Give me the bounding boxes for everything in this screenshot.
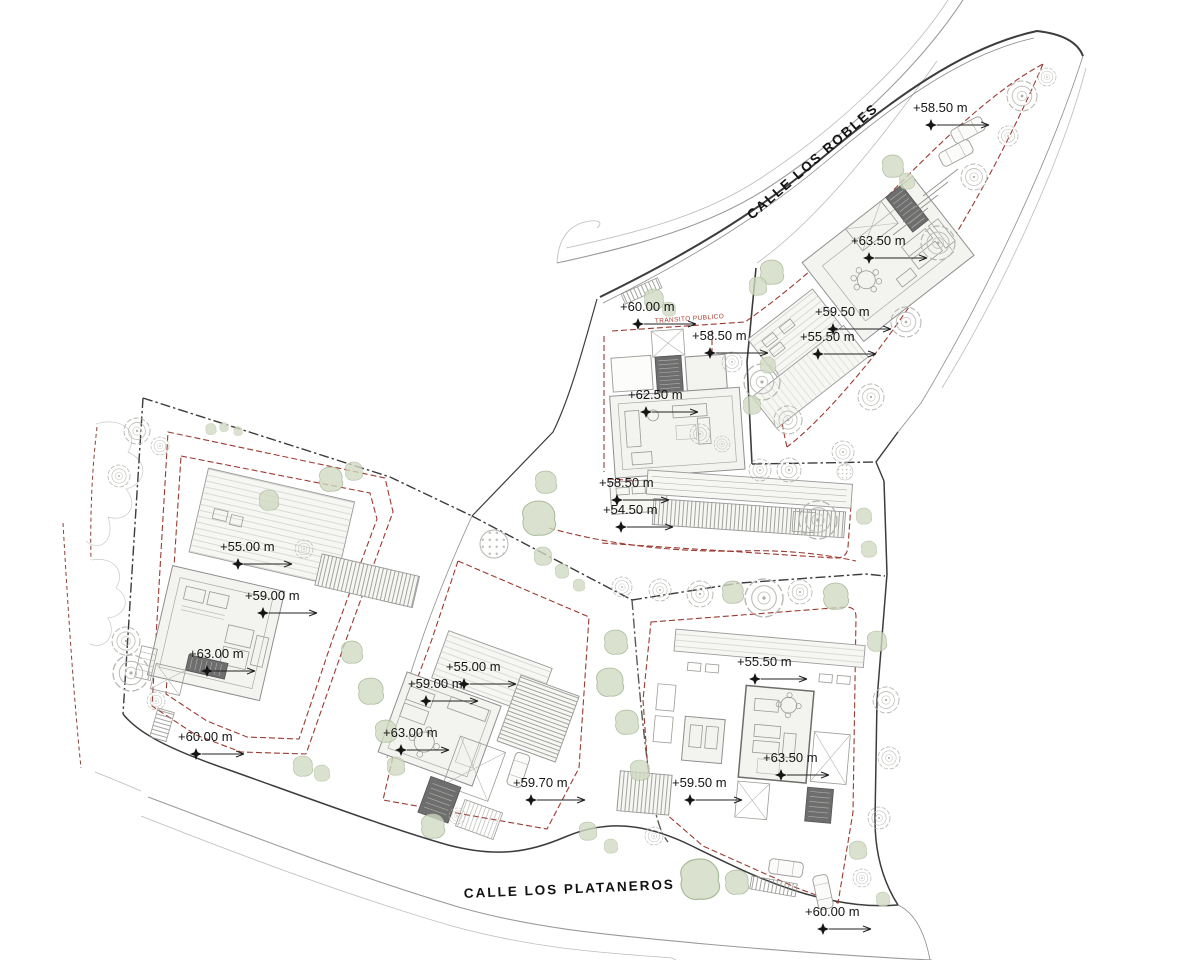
- tree-icon: [220, 423, 229, 432]
- street-label-calle-los-plataneros: CALLE LOS PLATANEROS: [463, 877, 675, 901]
- tree-icon: [868, 807, 890, 829]
- tree-icon: [535, 471, 556, 493]
- tree-icon: [899, 173, 915, 189]
- tree-icon: [749, 277, 766, 295]
- tree-icon: [725, 870, 748, 894]
- tree-icon: [319, 467, 342, 491]
- tree-icon: [788, 580, 812, 604]
- survey-point-icon: [190, 748, 202, 760]
- tree-icon: [743, 396, 760, 414]
- elevation-label: +58.50 m: [913, 100, 968, 115]
- tree-icon: [579, 822, 596, 840]
- elevation-label: +60.00 m: [178, 729, 233, 744]
- survey-point-icon: [525, 794, 537, 806]
- survey-point-icon: [817, 923, 829, 935]
- tree-icon: [882, 155, 903, 177]
- tree-icon: [861, 541, 877, 557]
- tree-icon: [867, 631, 886, 651]
- elevation-label: +59.00 m: [245, 588, 300, 603]
- tree-icon: [234, 427, 243, 436]
- tree-icon: [345, 462, 362, 480]
- tree-icon: [421, 814, 444, 838]
- tree-icon: [1038, 68, 1056, 86]
- tree-icon: [649, 579, 671, 601]
- tree-icon: [597, 668, 624, 696]
- elevation-label: +58.50 m: [692, 328, 747, 343]
- survey-point-icon: [615, 521, 627, 533]
- tree-icon: [604, 630, 627, 654]
- tree-icon: [823, 583, 848, 609]
- tree-icon: [147, 692, 165, 710]
- tree-icon: [615, 710, 638, 734]
- tree-icon: [573, 579, 585, 591]
- villa-e-driveway: [750, 858, 834, 910]
- elevation-label: +54.50 m: [603, 502, 658, 517]
- elevation-label: +63.50 m: [763, 750, 818, 765]
- tree-icon: [961, 164, 987, 190]
- tree-icon: [998, 126, 1018, 146]
- villa-b-pergola: [644, 470, 852, 538]
- tree-icon: [856, 508, 872, 524]
- survey-point-icon: [749, 673, 761, 685]
- tree-icon: [358, 678, 383, 704]
- elevation-label: +62.50 m: [628, 387, 683, 402]
- tree-icon: [876, 892, 890, 906]
- elevation-label: +63.00 m: [383, 725, 438, 740]
- tree-icon: [849, 841, 866, 859]
- tree-icon: [745, 579, 783, 617]
- tree-icon: [151, 437, 169, 455]
- tree-icon: [534, 547, 551, 565]
- elevation-label: +55.00 m: [446, 659, 501, 674]
- elevation-label: +59.00 m: [408, 676, 463, 691]
- tree-icon: [113, 655, 149, 691]
- car-icon: [768, 858, 804, 878]
- tree-icon: [837, 464, 853, 480]
- elevation-label: +55.50 m: [737, 654, 792, 669]
- tree-icon: [555, 564, 569, 578]
- survey-point-icon: [632, 318, 644, 330]
- tree-icon: [523, 501, 556, 535]
- tree-icon: [206, 424, 217, 435]
- villa-c-entry-steps: [150, 708, 175, 742]
- tree-icon: [314, 765, 330, 781]
- site-plan-canvas: +58.50 m +63.50 m +59.50 m +55.50 m +60.…: [0, 0, 1200, 960]
- tree-icon: [681, 859, 720, 899]
- elevation-label: +58.50 m: [599, 475, 654, 490]
- elevation-label: +59.50 m: [672, 775, 727, 790]
- survey-point-icon: [684, 794, 696, 806]
- elevation-label: +55.00 m: [220, 539, 275, 554]
- tree-icon: [124, 418, 150, 444]
- tree-icon: [777, 458, 801, 482]
- elevation-label: +63.00 m: [189, 646, 244, 661]
- elevation-label: +60.00 m: [805, 904, 860, 919]
- tree-icon: [341, 641, 362, 663]
- tree-icon: [722, 581, 743, 603]
- tree-icon: [853, 869, 871, 887]
- elevation-marker: +59.70 m: [513, 775, 585, 806]
- tree-icon: [760, 357, 776, 373]
- elevation-label: +63.50 m: [851, 233, 906, 248]
- site-plan-drawing: +58.50 m +63.50 m +59.50 m +55.50 m +60.…: [0, 0, 1200, 960]
- tree-icon: [630, 760, 649, 780]
- tree-icon: [878, 747, 900, 769]
- elevation-label: +60.00 m: [620, 299, 675, 314]
- tree-icon: [604, 839, 618, 853]
- tree-icon: [108, 465, 130, 487]
- tree-icon: [687, 581, 713, 607]
- elevation-label: +55.50 m: [800, 329, 855, 344]
- survey-point-icon: [925, 119, 937, 131]
- tree-icon: [259, 490, 278, 510]
- tree-icon: [1007, 81, 1037, 111]
- tree-icon: [293, 756, 312, 776]
- tree-icon: [480, 530, 508, 558]
- tree-icon: [387, 757, 404, 775]
- elevation-marker: +59.50 m: [672, 775, 742, 806]
- tree-icon: [112, 627, 140, 655]
- tree-icon: [858, 384, 884, 410]
- elevation-label: +59.70 m: [513, 775, 568, 790]
- elevation-marker: +60.00 m: [620, 299, 696, 330]
- elevation-marker: +60.00 m: [805, 904, 871, 935]
- tree-icon: [832, 441, 854, 463]
- elevation-label: +59.50 m: [815, 304, 870, 319]
